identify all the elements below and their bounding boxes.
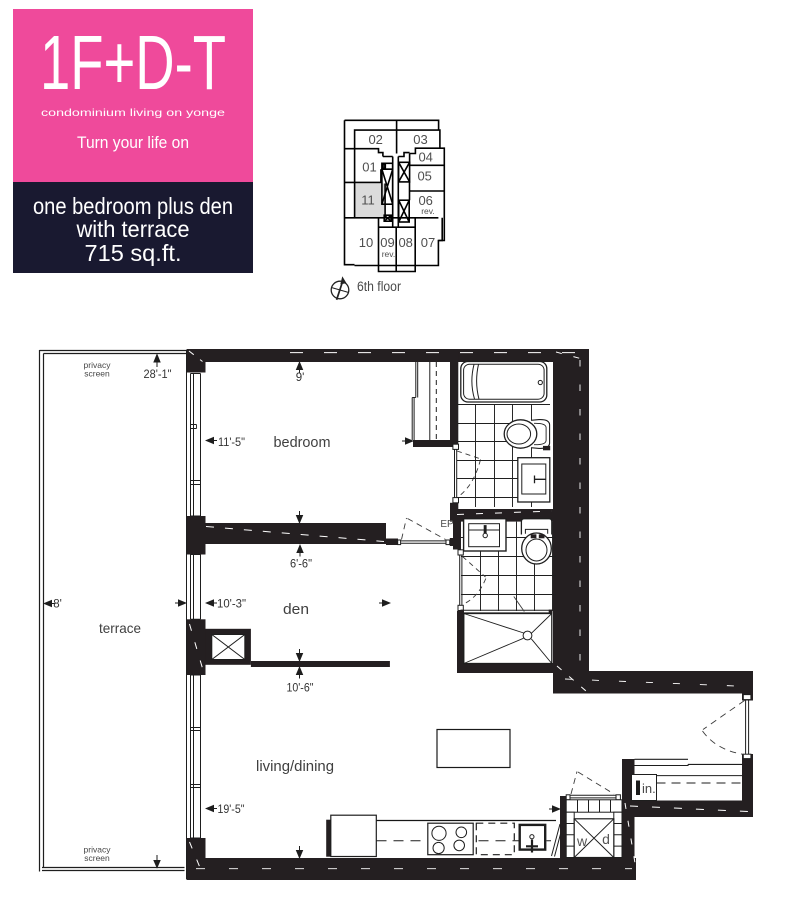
svg-text:screen: screen [84, 369, 110, 379]
svg-text:d: d [602, 831, 610, 847]
svg-text:rev.: rev. [382, 249, 396, 259]
svg-text:condominium living on yonge: condominium living on yonge [41, 107, 225, 119]
svg-text:w: w [576, 833, 588, 849]
svg-text:rev.: rev. [421, 206, 435, 216]
svg-text:28'-1": 28'-1" [144, 369, 172, 381]
svg-text:11: 11 [361, 193, 375, 208]
svg-text:04: 04 [418, 150, 432, 165]
svg-text:6th floor: 6th floor [357, 279, 401, 294]
svg-text:715 sq.ft.: 715 sq.ft. [85, 240, 182, 266]
svg-text:in.: in. [642, 781, 656, 796]
svg-text:10'-6": 10'-6" [287, 683, 314, 695]
svg-text:bedroom: bedroom [274, 434, 331, 451]
svg-text:living/dining: living/dining [256, 758, 334, 775]
svg-text:02: 02 [368, 132, 382, 147]
svg-text:09: 09 [380, 235, 394, 250]
svg-text:terrace: terrace [99, 620, 141, 636]
svg-text:9': 9' [296, 372, 305, 384]
svg-text:03: 03 [413, 132, 427, 147]
svg-text:Turn your life on: Turn your life on [77, 133, 189, 152]
svg-text:01: 01 [362, 160, 376, 175]
svg-text:10: 10 [359, 235, 373, 250]
svg-text:6'-6": 6'-6" [290, 559, 312, 571]
svg-text:10'-3": 10'-3" [217, 599, 246, 611]
svg-text:EP: EP [440, 519, 454, 530]
svg-text:with terrace: with terrace [76, 216, 190, 242]
svg-text:05: 05 [417, 169, 431, 184]
svg-text:screen: screen [84, 853, 110, 863]
svg-text:1F+D-T: 1F+D-T [40, 20, 226, 106]
svg-text:19'-5": 19'-5" [218, 804, 245, 816]
svg-text:11'-5": 11'-5" [218, 437, 245, 449]
svg-text:08: 08 [398, 235, 412, 250]
svg-text:8': 8' [53, 599, 62, 611]
svg-text:den: den [283, 601, 309, 618]
svg-text:07: 07 [421, 235, 435, 250]
